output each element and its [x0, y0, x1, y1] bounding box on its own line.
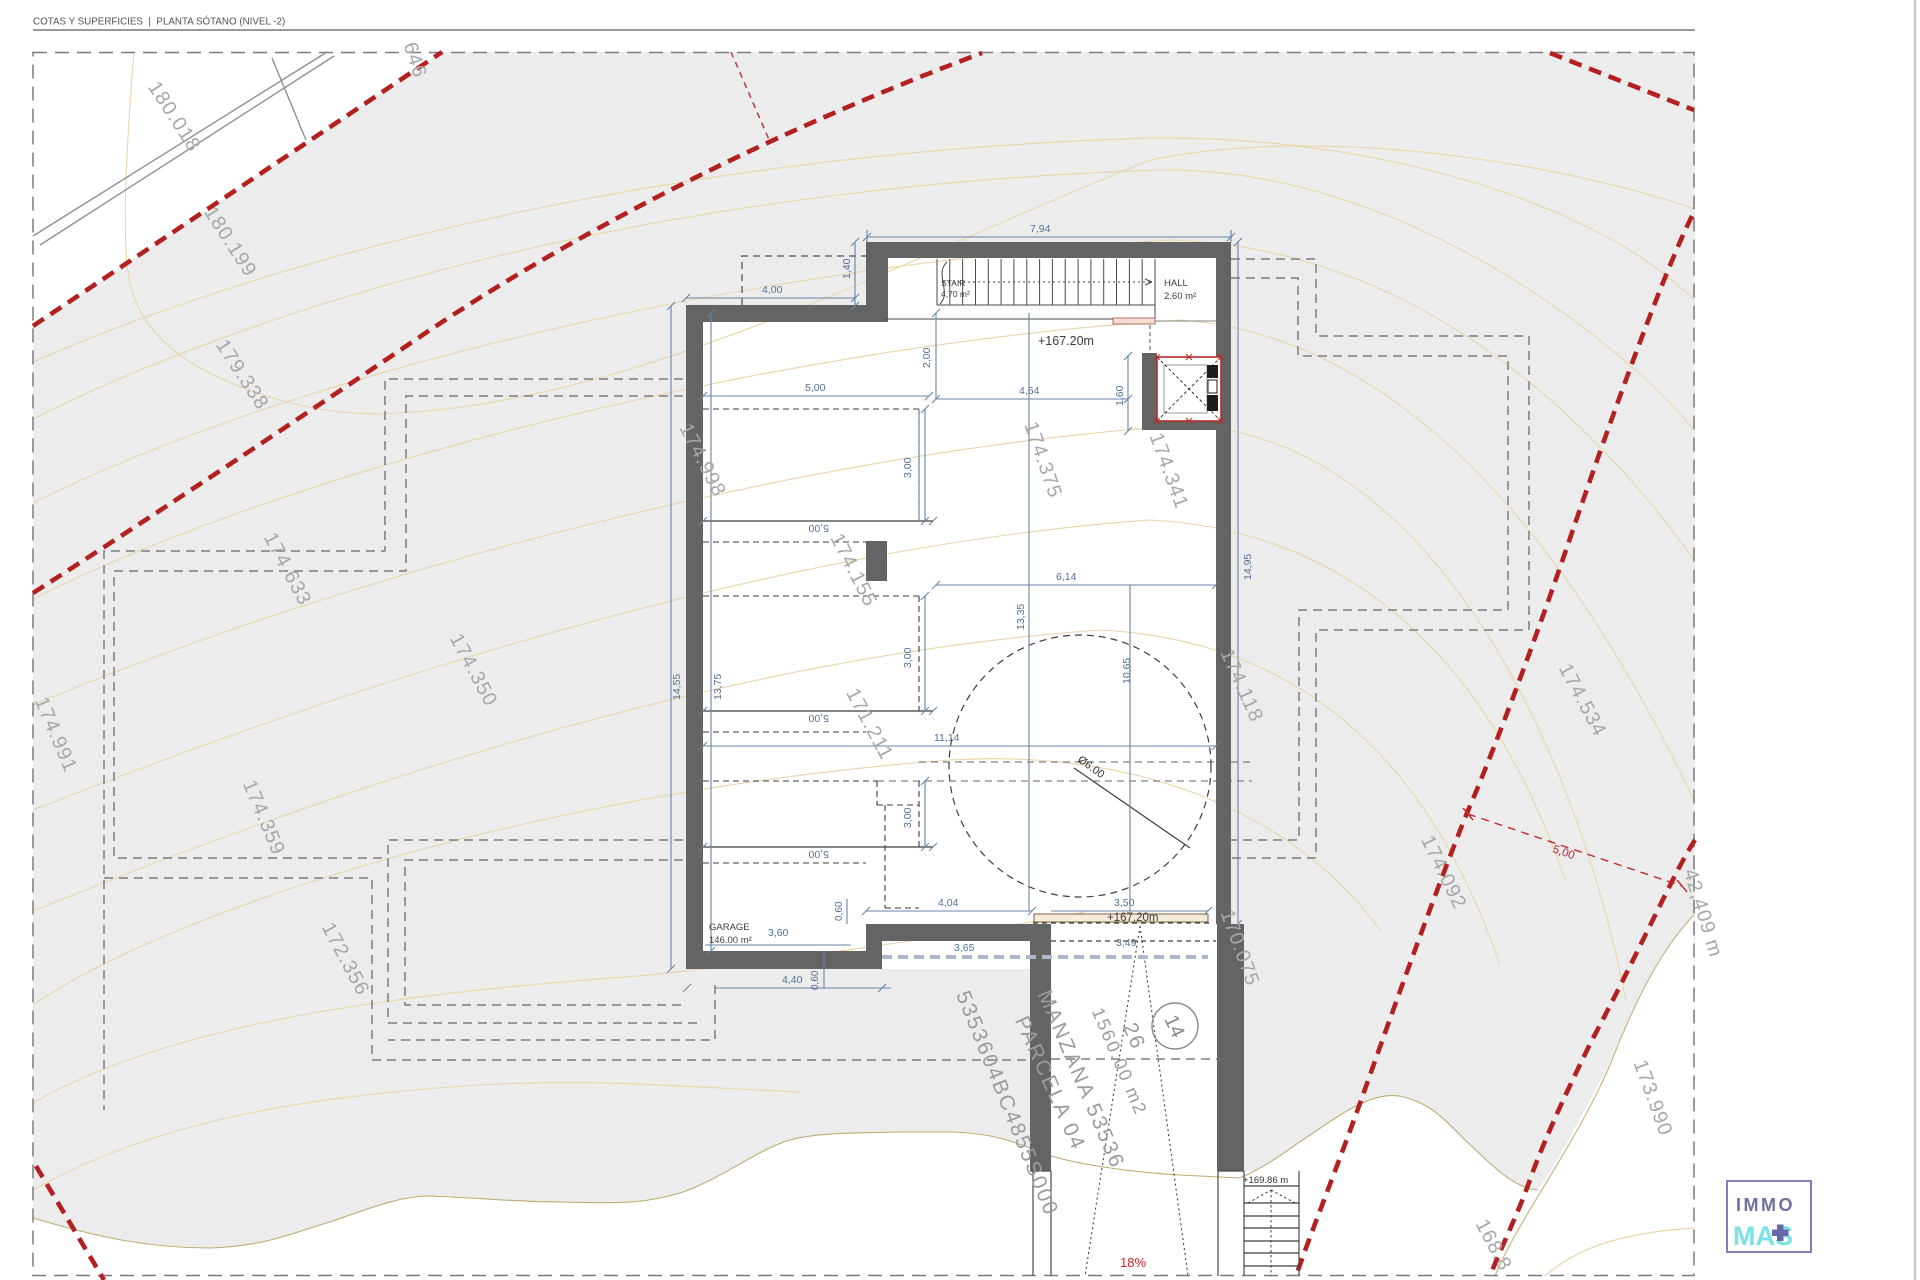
svg-text:4,40: 4,40 [782, 974, 803, 986]
svg-text:STAIR: STAIR [941, 278, 965, 288]
svg-text:11,14: 11,14 [934, 732, 960, 744]
svg-text:146.00 m²: 146.00 m² [709, 935, 752, 946]
svg-text:0,60: 0,60 [810, 970, 821, 990]
svg-text:5,00: 5,00 [808, 522, 829, 534]
svg-text:1,60: 1,60 [1114, 385, 1126, 406]
svg-text:3,50: 3,50 [1114, 897, 1135, 909]
svg-text:14,95: 14,95 [1242, 554, 1254, 580]
svg-text:1,40: 1,40 [841, 258, 853, 279]
svg-text:3,65: 3,65 [954, 942, 975, 954]
svg-text:COTAS Y SUPERFICIES | PLANTA: COTAS Y SUPERFICIES | PLANTA SÓTANO (NIV… [33, 17, 285, 28]
svg-text:14,55: 14,55 [671, 674, 683, 700]
svg-text:3,00: 3,00 [902, 647, 914, 668]
svg-text:13,75: 13,75 [712, 674, 724, 700]
svg-text:2.60 m²: 2.60 m² [1164, 291, 1196, 302]
svg-text:5,00: 5,00 [808, 712, 829, 724]
svg-text:6,14: 6,14 [1056, 571, 1077, 583]
svg-text:4,00: 4,00 [762, 284, 783, 296]
svg-text:+169.86 m: +169.86 m [1243, 1175, 1288, 1186]
svg-text:5,00: 5,00 [808, 848, 829, 860]
svg-text:3,00: 3,00 [902, 807, 914, 828]
svg-text:7,94: 7,94 [1030, 223, 1051, 235]
svg-text:4,64: 4,64 [1019, 385, 1040, 397]
svg-text:4,70 m²: 4,70 m² [941, 289, 970, 299]
svg-text:18%: 18% [1120, 1255, 1146, 1270]
svg-text:5,00: 5,00 [805, 382, 826, 394]
svg-text:13,35: 13,35 [1015, 604, 1027, 630]
svg-text:3,49: 3,49 [1116, 937, 1137, 949]
svg-text:0,60: 0,60 [834, 901, 845, 921]
svg-text:10,65: 10,65 [1121, 658, 1133, 684]
svg-text:3,00: 3,00 [902, 457, 914, 478]
svg-text:HALL: HALL [1164, 278, 1188, 289]
svg-text:GARAGE: GARAGE [709, 922, 750, 933]
svg-text:2,00: 2,00 [921, 347, 933, 368]
svg-text:IMMO: IMMO [1736, 1195, 1795, 1215]
svg-text:+167.20m: +167.20m [1107, 912, 1158, 924]
svg-text:3,60: 3,60 [768, 927, 789, 939]
svg-text:+167.20m: +167.20m [1038, 334, 1094, 348]
svg-text:4,04: 4,04 [938, 897, 959, 909]
